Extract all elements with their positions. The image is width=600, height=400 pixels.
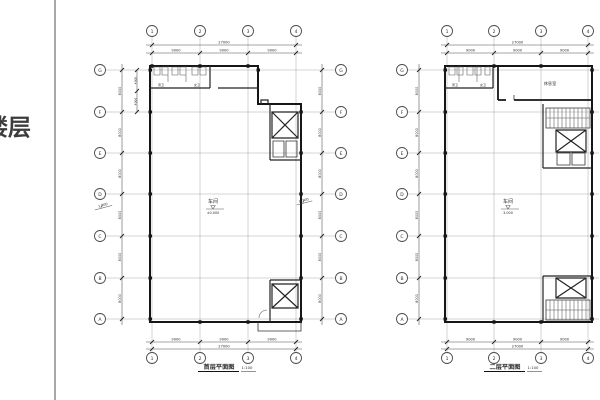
col-bubble-label: 2 <box>493 29 496 35</box>
room-label: 车间 <box>503 198 513 205</box>
door-arc <box>259 310 267 318</box>
floor-plan-canvas: 27000 9000 9000 9000 9000 9000 9000 2700… <box>0 0 600 400</box>
dim-label: 8000 <box>415 253 419 262</box>
wc-label: 男卫 <box>158 82 164 87</box>
level-label: ±0.000 <box>207 211 220 215</box>
dim-label: 8000 <box>118 211 122 220</box>
dim-label: 27000 <box>218 345 230 349</box>
dim-label: 4000 <box>134 98 138 106</box>
row-bubble-label: E <box>99 151 102 157</box>
toilet-fixtures <box>154 66 206 82</box>
dim-label: 4000 <box>134 77 138 85</box>
room-label: 车间 <box>208 198 218 205</box>
dim-label: 9000 <box>171 49 181 53</box>
col-bubble-label: 3 <box>247 29 250 35</box>
row-bubble-label: C <box>339 234 342 240</box>
column-bubbles-bottom: 1 2 3 4 <box>442 353 594 364</box>
stair-treads <box>546 300 590 320</box>
col-bubble-label: 2 <box>493 356 496 362</box>
wc-label: 女卫 <box>480 82 486 87</box>
row-bubble-label: D <box>339 192 343 198</box>
row-bubble-label: G <box>339 68 343 74</box>
col-bubble-label: 1 <box>446 356 449 362</box>
row-bubble-label: D <box>400 192 404 198</box>
floor-plan-2: 27000 9000 9000 9000 9000 9000 9000 2700… <box>397 26 600 372</box>
dim-label: 8000 <box>318 253 322 262</box>
row-bubble-label: C <box>400 234 403 240</box>
dimension-ticks <box>417 43 590 351</box>
dim-label: 8000 <box>318 128 322 137</box>
dim-label: 9000 <box>560 49 570 53</box>
level-marker-right: 0.300 <box>296 197 313 205</box>
dim-label: 9000 <box>513 49 523 53</box>
level-marker-left: 1.000 <box>94 201 113 210</box>
row-bubbles-left: G F E D C B A <box>95 65 106 325</box>
row-bubbles-right: G F E D C B A <box>336 65 347 325</box>
drawing-viewer: 楼层 27000 9000 9000 9000 9000 9000 9000 2… <box>0 0 600 400</box>
elevator-icon <box>556 278 586 298</box>
col-bubble-label: 4 <box>295 356 298 362</box>
col-bubble-label: 1 <box>446 29 449 35</box>
dim-label: 9000 <box>513 338 523 342</box>
dim-label: 8000 <box>415 128 419 137</box>
row-bubble-label: D <box>98 192 102 198</box>
plan-scale: 1:100 <box>528 365 540 370</box>
row-bubble-label: C <box>98 234 101 240</box>
row-bubble-label: B <box>98 276 101 282</box>
dim-label: 27000 <box>218 41 230 45</box>
level-label: 1.000 <box>98 202 108 208</box>
plan-title: 二层平面图 <box>490 363 521 371</box>
col-bubble-label: 3 <box>247 356 250 362</box>
column-bubbles-top: 1 2 3 4 <box>442 26 594 37</box>
dim-label: 8000 <box>415 211 419 220</box>
row-bubble-label: F <box>99 110 102 116</box>
row-bubble-label: F <box>340 110 343 116</box>
plan-title: 首层平面图 <box>204 363 235 371</box>
row-bubbles-left: G F E D C B A <box>397 65 408 325</box>
wc-label: 男卫 <box>452 82 458 87</box>
plan-scale: 1:100 <box>242 365 254 370</box>
porch-edge <box>258 322 301 331</box>
dim-label: 8000 <box>118 87 122 96</box>
col-bubble-label: 1 <box>151 356 154 362</box>
col-bubble-label: 4 <box>295 29 298 35</box>
dim-label: 9000 <box>267 338 277 342</box>
dim-label: 8000 <box>318 169 322 178</box>
row-bubble-label: B <box>400 276 403 282</box>
col-bubble-label: 1 <box>151 29 154 35</box>
dim-label: 8000 <box>118 253 122 262</box>
dim-label: 8000 <box>318 87 322 96</box>
grid-lines <box>408 37 599 352</box>
dim-label: 8000 <box>118 169 122 178</box>
room-label: 休息室 <box>544 80 557 87</box>
dim-label: 9000 <box>171 338 181 342</box>
col-bubble-label: 4 <box>587 29 590 35</box>
level-marker-icon <box>206 206 224 210</box>
dim-label: 9000 <box>466 338 476 342</box>
dim-label: 8000 <box>318 294 322 303</box>
dim-label: 8000 <box>118 294 122 303</box>
row-bubble-label: G <box>400 68 404 74</box>
wc-label: 女卫 <box>194 82 200 87</box>
stair-treads <box>546 108 590 128</box>
column-bubbles-top: 1 2 3 4 <box>147 26 302 37</box>
level-label: 3.000 <box>503 211 513 215</box>
dim-label: 8000 <box>318 211 322 220</box>
dim-label: 27000 <box>512 345 524 349</box>
dim-label: 9000 <box>466 49 476 53</box>
dim-label: 8000 <box>415 169 419 178</box>
floor-plan-1: 27000 9000 9000 9000 9000 9000 9000 2700… <box>94 26 347 372</box>
toilet-fixtures <box>449 66 490 82</box>
col-bubble-label: 3 <box>540 29 543 35</box>
dim-label: 8000 <box>415 87 419 96</box>
stair-boxes <box>557 153 585 165</box>
col-bubble-label: 4 <box>587 356 590 362</box>
dim-label: 27000 <box>512 41 524 45</box>
row-bubble-label: B <box>339 276 342 282</box>
column-bubbles-bottom: 1 2 3 4 <box>147 353 302 364</box>
col-bubble-label: 3 <box>540 356 543 362</box>
elevator-icon <box>556 130 586 152</box>
stair-boxes <box>273 141 297 157</box>
col-bubble-label: 2 <box>199 356 202 362</box>
dim-label: 9000 <box>219 49 229 53</box>
row-bubble-label: F <box>401 110 404 116</box>
dim-label: 8000 <box>415 294 419 303</box>
level-marker-icon <box>501 206 519 210</box>
dim-label: 9000 <box>267 49 277 53</box>
dim-label: 9000 <box>560 338 570 342</box>
dim-label: 9000 <box>219 338 229 342</box>
row-bubble-label: E <box>401 151 404 157</box>
col-bubble-label: 2 <box>199 29 202 35</box>
row-bubble-label: E <box>340 151 343 157</box>
dim-label: 8000 <box>118 128 122 137</box>
row-bubble-label: G <box>98 68 102 74</box>
